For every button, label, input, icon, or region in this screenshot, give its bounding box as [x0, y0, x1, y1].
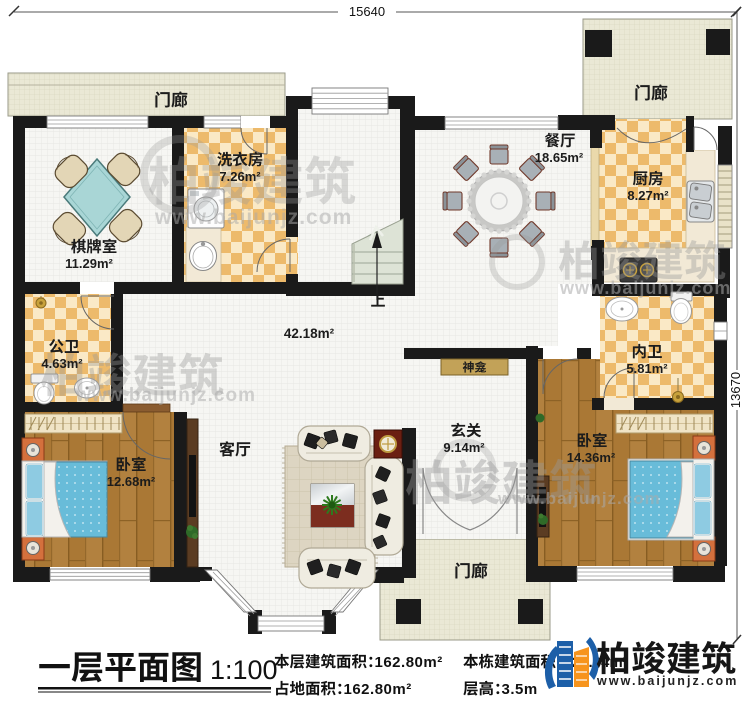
svg-text:www.baijunjz.com: www.baijunjz.com [497, 489, 661, 508]
svg-text:www.baijunjz.com: www.baijunjz.com [596, 674, 738, 688]
svg-text:3.5m: 3.5m [502, 681, 538, 698]
svg-text:www.baijunjz.com: www.baijunjz.com [75, 385, 256, 406]
svg-text:12.68m²: 12.68m² [107, 474, 156, 489]
svg-text:9.14m²: 9.14m² [443, 440, 485, 455]
svg-text:18.65m²: 18.65m² [535, 150, 584, 165]
svg-text:1:100: 1:100 [210, 655, 278, 685]
svg-text:13670: 13670 [728, 372, 743, 408]
svg-text:162.80m²: 162.80m² [344, 681, 412, 698]
svg-text:7.26m²: 7.26m² [219, 169, 261, 184]
svg-text:42.18m²: 42.18m² [284, 326, 335, 341]
svg-text:15640: 15640 [349, 4, 385, 19]
svg-text:14.36m²: 14.36m² [567, 450, 616, 465]
svg-text:www.baijunjz.com: www.baijunjz.com [154, 206, 352, 229]
svg-text:www.baijunjz.com: www.baijunjz.com [559, 278, 731, 298]
svg-text:5.81m²: 5.81m² [626, 361, 668, 376]
svg-text:4.63m²: 4.63m² [41, 356, 83, 371]
svg-text:162.80m²: 162.80m² [375, 654, 443, 671]
svg-text:8.27m²: 8.27m² [627, 188, 669, 203]
svg-text:11.29m²: 11.29m² [65, 256, 113, 271]
